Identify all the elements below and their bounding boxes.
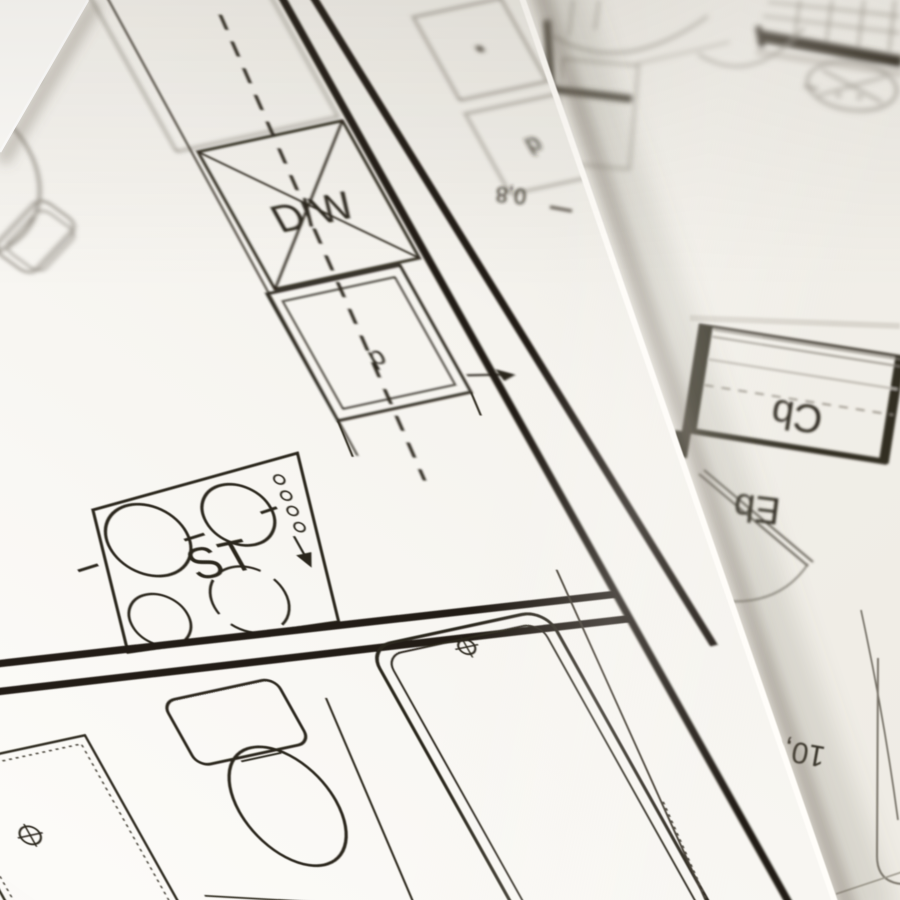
dimension-label: 0,8 <box>495 182 528 210</box>
blueprint-photo: Cb Eb 10,0 <box>0 0 900 900</box>
closet-label: Cb <box>768 390 825 441</box>
wall-end-cap <box>758 26 762 48</box>
blueprint-scene: Cb Eb 10,0 <box>0 0 900 900</box>
